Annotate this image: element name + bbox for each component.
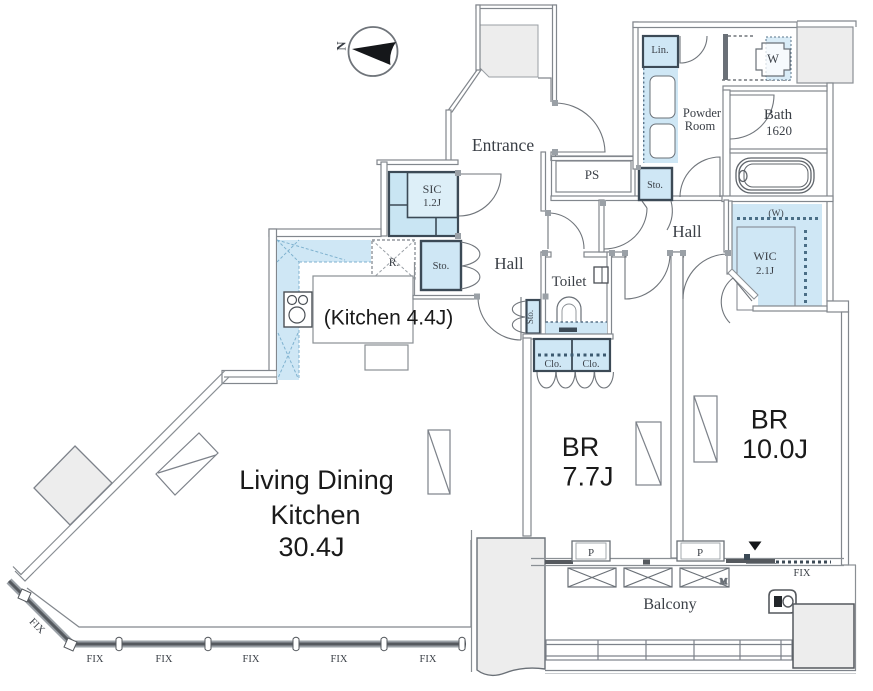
svg-text:BR: BR: [562, 432, 600, 462]
svg-text:Kitchen: Kitchen: [270, 500, 360, 530]
svg-text:Lin.: Lin.: [651, 45, 668, 56]
svg-text:Living Dining: Living Dining: [239, 465, 394, 495]
svg-text:P: P: [588, 547, 594, 559]
svg-text:FIX: FIX: [87, 654, 104, 665]
svg-text:7.7J: 7.7J: [562, 462, 613, 492]
svg-text:P: P: [697, 547, 703, 559]
svg-text:Hall: Hall: [672, 222, 702, 241]
svg-text:M: M: [720, 577, 727, 586]
svg-text:BR: BR: [751, 405, 789, 435]
svg-text:1620: 1620: [766, 123, 792, 138]
svg-text:FIX: FIX: [331, 654, 348, 665]
svg-text:Sto.: Sto.: [647, 180, 663, 191]
svg-text:Clo.: Clo.: [545, 359, 562, 370]
svg-text:FIX: FIX: [794, 568, 811, 579]
svg-text:(Kitchen 4.4J): (Kitchen 4.4J): [324, 307, 454, 330]
svg-text:10.0J: 10.0J: [742, 434, 808, 464]
svg-text:Sto.: Sto.: [433, 261, 450, 272]
svg-text:Toilet: Toilet: [552, 274, 588, 290]
svg-text:2.1J: 2.1J: [756, 265, 775, 277]
svg-text:Hall: Hall: [494, 254, 524, 273]
svg-text:SIC: SIC: [423, 182, 442, 196]
svg-text:Powder: Powder: [683, 106, 722, 120]
svg-text:W: W: [767, 52, 779, 66]
svg-text:PS: PS: [585, 167, 599, 182]
svg-text:30.4J: 30.4J: [278, 532, 344, 562]
svg-text:Sto.: Sto.: [525, 310, 535, 324]
svg-text:N: N: [335, 41, 349, 50]
svg-text:FIX: FIX: [420, 654, 437, 665]
svg-text:WIC: WIC: [753, 249, 776, 263]
svg-text:Balcony: Balcony: [643, 596, 696, 613]
svg-text:FIX: FIX: [243, 654, 260, 665]
svg-text:Room: Room: [685, 119, 716, 133]
svg-text:(W): (W): [768, 208, 783, 219]
svg-text:Clo.: Clo.: [583, 359, 600, 370]
svg-text:FIX: FIX: [156, 654, 173, 665]
svg-text:1.2J: 1.2J: [423, 197, 442, 209]
svg-text:Bath: Bath: [764, 107, 793, 123]
svg-text:R.: R.: [389, 257, 400, 269]
svg-text:Entrance: Entrance: [472, 135, 534, 155]
